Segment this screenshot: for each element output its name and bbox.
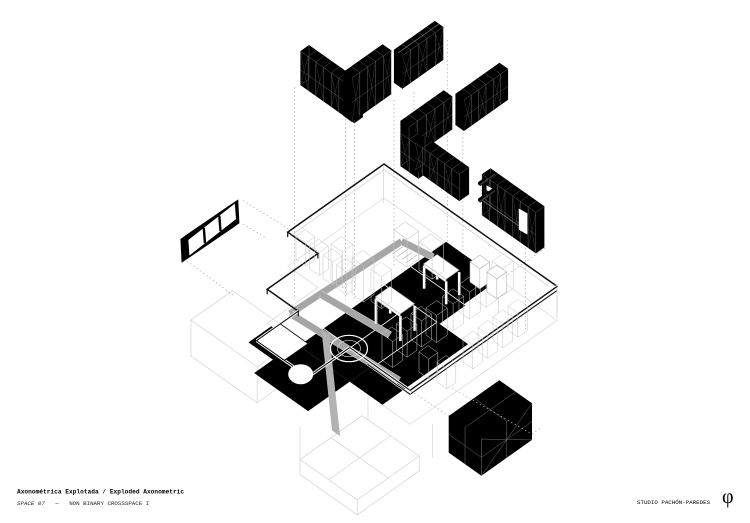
svg-text:SPACE 07 — NON BINARY CROS: SPACE 07 — NON BINARY CROSSSPACE I: [17, 500, 149, 507]
svg-text:STUDIO PACHÓN-PAREDES: STUDIO PACHÓN-PAREDES: [637, 499, 711, 506]
svg-text:Axonométrica Explotada / Explo: Axonométrica Explotada / Exploded Axonom…: [17, 489, 184, 496]
svg-text:φ: φ: [722, 486, 734, 508]
